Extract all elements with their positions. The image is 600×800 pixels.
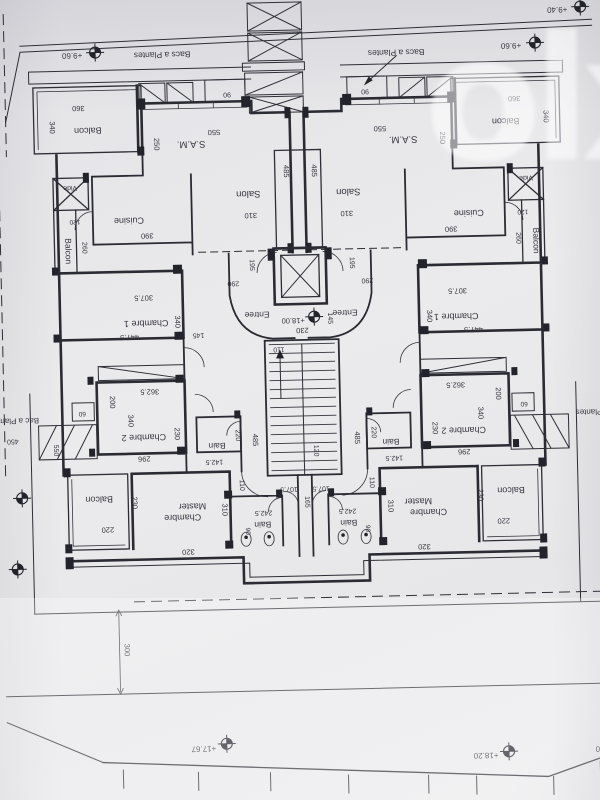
dim-label: 485 [282,165,291,178]
dim-label: 120 [312,445,319,457]
dim-label: 290 [227,279,239,286]
room-label: Balcon [497,485,525,496]
elevation-label: +18.20 [473,751,498,761]
dim-label: 142.5 [205,458,223,465]
dim-label: 145 [326,312,333,324]
dashed-boundary-left-top [3,15,6,157]
dim-label: 220 [102,525,115,534]
corridor-walls [298,475,314,556]
dim-300-line [116,610,124,694]
dim-label: 260 [80,242,87,254]
dim-label: 362.5 [140,387,159,396]
dim-label: 107.5 [312,484,330,491]
dim-label: 390 [141,231,154,240]
room-label: Balcon [74,125,102,136]
dim-label: 230 [476,489,485,502]
room-label: S.A.M. [389,133,418,145]
dim-label: 310 [340,209,353,218]
room-label: Bain [208,441,226,451]
elevation-label: +9.60 [61,51,82,60]
dim-label: 296 [458,447,471,456]
room-label: Master [179,501,207,512]
dim-label: 362.5 [446,380,465,389]
exterior-wall-bottom [70,551,544,588]
room-label: Chambre 2 [121,432,166,443]
floorplan-photo: BalconS.A.M.SalonCuisineVideBalconChambr… [0,0,600,800]
dim-label: 200 [108,396,117,409]
dim-label: 200 [494,387,503,400]
dim-label: 290 [361,276,373,283]
elevation-marker-icon [9,560,27,578]
room-label: Chambre [164,512,201,523]
elevation-marker-icon [500,742,518,760]
dim-label: 242.5 [339,507,357,514]
staircase [265,339,342,476]
dim-label: 220 [234,430,241,442]
room-label: Entree [332,308,358,319]
dim-label: 310 [220,503,229,516]
elevation-marker-icon [218,735,236,753]
dim-label: 110 [238,480,245,491]
dim-label: 195 [348,257,355,269]
dim-label: 450 [7,437,19,444]
dim-label: 107.5 [280,485,298,492]
dim-label: 296 [138,454,151,463]
dim-label: 90 [223,90,231,97]
dim-label: 340 [425,310,434,323]
site-label: Bac a Plantes [576,407,600,417]
room-label: S.A.M. [177,138,206,150]
terrace-dashed [135,591,600,602]
dim-label: 110 [368,477,375,488]
dim-label: 320 [182,547,195,556]
dim-label: 145 [192,331,204,338]
dim-label: 307.5 [134,293,153,302]
site-corner [7,721,103,765]
dim-label: 90 [364,525,371,533]
dim-label: 230 [296,326,309,335]
dim-label: 230 [173,427,182,440]
room-label: Bain [382,437,400,447]
elevation-marker-icon [13,489,31,507]
shaft-column [241,2,305,113]
dim-label: 220 [497,516,510,525]
site-label: Bacs a Plantes [134,49,191,60]
dim-label: 242.5 [255,509,273,516]
site-label: Bacs a Plantes [368,47,425,58]
terrace-line-2 [7,683,600,697]
room-label: Salon [336,186,361,198]
dim-label: 142.5 [385,454,403,461]
dim-label: 310 [386,500,395,513]
dim-label: 320 [418,542,431,551]
dim-label: 165 [303,496,310,508]
olx-watermark: olx [424,14,600,186]
elevation-label: +18.20 [595,744,600,754]
dim-label: 230 [130,496,139,509]
room-label: Bain [254,520,272,530]
elevation-marker-icon [305,307,323,325]
dim-label: 447.5 [120,333,139,342]
room-label: Chambre 1 [124,318,169,329]
dim-label: 485 [353,431,362,444]
site-label: Bac a Plantes [0,416,39,426]
dim-label: 485 [251,434,260,447]
dim-label: 550 [52,445,59,457]
dim-label: 120 [517,208,528,215]
dim-label: 550 [208,128,221,137]
dim-label: 300 [122,644,131,657]
dim-label: 340 [173,315,182,328]
dim-label: 250 [152,138,161,151]
elevation-label: +17.67 [191,744,216,754]
dim-label: 310 [244,211,257,220]
stairs-direction-arrow-icon [280,352,281,398]
dim-label: 90 [244,528,251,536]
dim-label: 447.5 [464,325,483,334]
dim-label: 60 [78,410,86,417]
room-label: Vide [63,184,77,191]
dim-label: 485 [310,164,319,177]
room-label: Bain [340,518,358,528]
room-label: Entree [244,310,270,321]
elevator-shaft [268,247,333,304]
elevation-label: +18.00 [282,316,305,326]
dim-label: 220 [370,426,377,438]
elevation-marker-icon [86,43,104,61]
dim-label: 360 [72,104,85,113]
room-label: Balcon [63,238,74,264]
wall-poche [539,546,547,558]
wall-poche [66,557,74,569]
dim-label: 195 [248,259,255,271]
room-label: Balcon [85,494,113,505]
room-label: Chambre 2 [441,425,486,436]
room-label: Cuisine [454,208,484,219]
room-label: Chambre [410,507,447,518]
room-label: Salon [236,188,261,200]
dim-label: 90 [361,87,369,94]
dim-label: 60 [520,400,528,407]
dim-label: 120 [69,218,80,225]
room-label: Chambre 1 [434,311,479,322]
dim-label: 390 [445,224,458,233]
site-line-bottom [103,751,600,786]
dim-label: 230 [431,422,440,435]
dashed-boundary-left [0,177,6,477]
dim-label: 340 [476,407,485,420]
dim-label: 260 [514,232,521,244]
room-label: Cuisine [114,215,144,226]
room-label: Balcon [531,227,542,253]
dim-label: 550 [374,124,387,133]
dim-label: 110 [273,345,284,352]
dim-label: 307.5 [448,286,467,295]
dim-label: 340 [126,414,135,427]
room-label: Master [404,496,432,507]
dim-label: 340 [48,121,57,134]
